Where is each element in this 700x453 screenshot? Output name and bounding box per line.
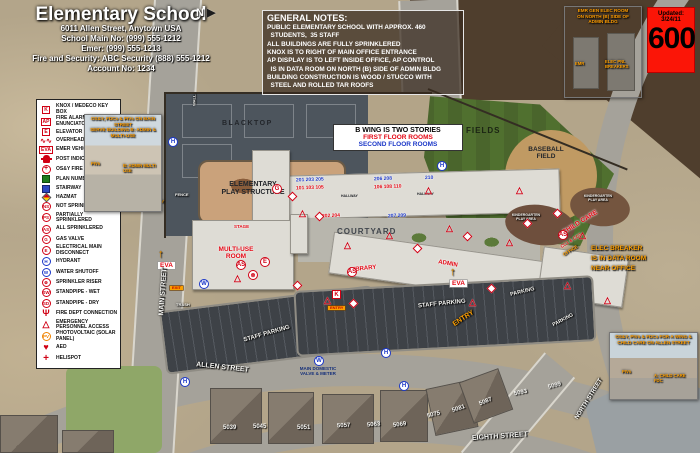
emergency-access-icon: △	[344, 240, 351, 251]
legend-label: HELISPOT	[56, 356, 81, 361]
water-shutoff-icon: W	[39, 268, 53, 277]
general-note-line-6: IS IN DATA ROOM ON NORTH (B) SIDE OF ADM…	[267, 66, 459, 74]
hydrant-icon: H	[168, 137, 178, 147]
emergency-access-icon: △	[516, 185, 523, 196]
water-shutoff-icon: W	[199, 279, 209, 289]
general-notes-box: GENERAL NOTES: PUBLIC ELEMENTARY SCHOOL …	[262, 10, 464, 95]
not-sprinklered-symbol: NS	[42, 202, 51, 211]
helispot-symbol: +	[43, 354, 49, 364]
hazmat-icon	[413, 244, 423, 254]
hazmat-icon	[288, 192, 298, 202]
site-address-line-2: School Main No: (999) 555-1212	[10, 34, 232, 44]
general-note-line-5: AP DISPLAY IS TO LEFT INSIDE OFFICE, AP …	[267, 57, 459, 65]
emergency-access-icon: △	[579, 230, 586, 241]
hazmat-icon	[315, 212, 325, 222]
water-shutoff-symbol: W	[42, 268, 51, 277]
emer-vehicle-access-icon: EVA	[39, 146, 53, 154]
emergency-access-icon: △	[604, 295, 611, 306]
emergency-access-icon: △	[324, 295, 331, 306]
hydrant-icon: H	[399, 381, 409, 391]
sprinkler-riser-icon: ⊗	[39, 278, 53, 287]
legend-label: STAIRWAY	[56, 186, 81, 191]
electrical-disconnect-icon: E	[260, 257, 270, 267]
house-number: 5087	[478, 397, 493, 408]
emergency-personnel-access-icon: △	[39, 320, 53, 329]
eva-arrow-icon: ↑	[450, 266, 456, 278]
legend-label: STANDPIPE - WET	[56, 290, 100, 295]
elevator-symbol: E	[42, 128, 50, 136]
photo-chip: ELEC PNL BREAKERS	[605, 59, 629, 69]
site-address-line-1: 6011 Allen Street, Anytown USA	[10, 24, 232, 34]
general-note-line-8: STEEL AND ROLLED TAR ROOFS	[267, 82, 459, 90]
plan-number-icon	[39, 175, 53, 183]
legend-label: HAZMAT	[56, 195, 77, 200]
all-sprinklered-icon: AS	[558, 230, 568, 240]
legend-label: PARTIALLY SPRINKLERED	[56, 213, 118, 224]
emergency-access-icon: △	[299, 208, 306, 219]
hydrant-icon: H	[39, 257, 53, 266]
all-sprinklered-icon: AS	[236, 260, 246, 270]
house-number: 5039	[223, 425, 236, 431]
legend-label: ALL SPRINKLERED	[56, 226, 103, 231]
b-wing-note-line3: SECOND FLOOR ROOMS	[335, 141, 461, 148]
b-wing-note-line1: B WING IS TWO STORIES	[335, 127, 461, 134]
legend-item-hydrant: HHYDRANT	[39, 257, 118, 266]
legend-label: SPRINKLER RISER	[56, 280, 102, 285]
fire-alarm-annunciator-symbol: AP	[41, 118, 52, 126]
gas-valve-icon: G	[39, 235, 53, 244]
emer-vehicle-access-symbol: EVA	[39, 146, 53, 154]
plan-number: 600	[648, 23, 694, 55]
standpipe-dry-symbol: SD	[42, 299, 51, 308]
hazmat-symbol	[41, 192, 51, 202]
legend-label: EMERGENCY PERSONNEL ACCESS	[56, 320, 118, 331]
legend-label: WATER SHUTOFF	[56, 270, 99, 275]
legend-label: ELECTRICAL MAIN DISCONNECT	[56, 245, 118, 256]
legend-item-partially-sprinklered: PSPARTIALLY SPRINKLERED	[39, 213, 118, 224]
all-sprinklered-icon: AS	[39, 225, 53, 234]
legend-item-sprinkler-riser: ⊗SPRINKLER RISER	[39, 278, 118, 287]
north-arrow: N ▶	[196, 6, 215, 19]
legend-item-helispot: +HELISPOT	[39, 354, 118, 364]
house-number: 5081	[451, 404, 466, 414]
legend-item-water-shutoff: WWATER SHUTOFF	[39, 268, 118, 277]
photo-chip: EMR	[575, 61, 584, 66]
emergency-personnel-access-symbol: △	[43, 320, 50, 329]
partially-sprinklered-icon: PS	[39, 213, 53, 222]
plan-number-box: Updated: 3/24/11 600	[647, 7, 695, 73]
fire-alarm-annunciator-icon: AP	[39, 118, 53, 126]
emergency-access-icon: △	[234, 273, 241, 284]
legend-item-all-sprinklered: ASALL SPRINKLERED	[39, 225, 118, 234]
hydrant-icon: H	[180, 377, 190, 387]
house-number: 5063	[367, 421, 381, 428]
legend-item-standpipe-dry: SDSTANDPIPE - DRY	[39, 299, 118, 308]
site-address-line-5: Account No: 1234	[10, 64, 232, 74]
water-shutoff-icon: W	[314, 356, 324, 366]
photo-chip: B: ADMIN MULTI USE	[123, 163, 156, 173]
photo-chip: PIVs	[622, 369, 631, 374]
hydrant-icon: H	[381, 348, 391, 358]
legend-label: FIRE DEPT CONNECTION	[56, 311, 117, 316]
general-note-line-7: BUILDING CONSTRUCTION IS WOOD / STUCCO W…	[267, 74, 459, 82]
legend-label: ELEVATOR	[56, 130, 82, 135]
general-notes-title: GENERAL NOTES:	[267, 14, 459, 24]
eva-arrow-icon: ↑	[158, 248, 164, 260]
photo-caption: OS&Y, PIVs & FDCs FOR A WING & CHILD CAR…	[610, 334, 697, 345]
b-wing-note-line2: FIRST FLOOR ROOMS	[335, 134, 461, 141]
hazmat-icon	[293, 281, 303, 291]
pre-incident-plan-map: BLACKTOPFIELDSBASEBALL FIELDELEMENTARY P…	[0, 0, 700, 453]
legend-item-emergency-personnel-access: △EMERGENCY PERSONNEL ACCESS	[39, 320, 118, 331]
photo-chip: A: CHILD CARE FDC	[654, 373, 685, 383]
house-number: 5075	[426, 410, 440, 419]
hazmat-icon	[523, 219, 533, 229]
knox-key-box-symbol: K	[42, 106, 50, 114]
knox-key-box-icon: K	[39, 106, 53, 114]
photo-caption: EMR GEN ELEC ROOM ON NORTH (B) SIDE OF A…	[565, 8, 641, 25]
knox-box-icon: K	[332, 290, 341, 299]
site-address-line-4: Fire and Security: ABC Security (888) 55…	[10, 54, 232, 64]
photo-caption: OS&Y, FDCs & PIVs ON MAIN STREET SERVE B…	[85, 116, 161, 139]
emergency-access-icon: △	[469, 297, 476, 308]
site-address-line-3: Emer: (999) 555-1213	[10, 44, 232, 54]
general-note-line-2: STUDENTS, 35 STAFF	[267, 32, 459, 40]
legend-label: HYDRANT	[56, 259, 80, 264]
electrical-main-disconnect-symbol: E	[42, 246, 51, 255]
hazmat-icon	[553, 209, 563, 219]
photovoltaic-solar-panel-symbol: PV	[42, 332, 51, 341]
post-indicator-valve-symbol	[43, 155, 50, 163]
aed-symbol: ♥	[43, 343, 48, 352]
emergency-access-icon: △	[386, 230, 393, 241]
photo-chip: PIVs	[91, 161, 100, 166]
post-indicator-valve-icon	[39, 155, 53, 163]
hydrant-symbol: H	[42, 257, 51, 266]
fire-dept-connection-symbol: Ψ	[42, 309, 49, 318]
house-number: 5045	[253, 424, 266, 430]
overhead-door-symbol: ∿∿	[40, 138, 52, 145]
house-number: 5057	[337, 423, 351, 430]
legend-label: GAS VALVE	[56, 237, 84, 242]
sprinkler-riser-symbol: ⊗	[42, 278, 51, 287]
legend-item-aed: ♥AED	[39, 343, 118, 352]
legend-label: STANDPIPE - DRY	[56, 301, 99, 306]
north-arrow-icon: ▶	[207, 7, 215, 19]
electrical-main-disconnect-icon: E	[39, 246, 53, 255]
emergency-access-icon: △	[564, 280, 571, 291]
house-number: 5093	[514, 389, 528, 398]
helispot-icon: +	[39, 354, 53, 364]
general-note-line-4: KNOX IS TO RIGHT OF MAIN OFFICE ENTRANCE	[267, 49, 459, 57]
allen-street-valves-photo: OS&Y, PIVs & FDCs FOR A WING & CHILD CAR…	[609, 332, 698, 400]
emergency-access-icon: △	[506, 237, 513, 248]
legend-label: AED	[56, 345, 67, 350]
legend-item-electrical-main-disconnect: EELECTRICAL MAIN DISCONNECT	[39, 245, 118, 256]
all-sprinklered-icon: AS	[347, 267, 357, 277]
hazmat-icon	[349, 299, 359, 309]
aed-icon: ♥	[39, 343, 53, 352]
hazmat-icon	[39, 194, 53, 201]
site-address-block: 6011 Allen Street, Anytown USASchool Mai…	[10, 24, 232, 74]
emergency-access-icon: △	[446, 223, 453, 234]
house-number: 5099	[547, 381, 561, 390]
b-wing-note-box: B WING IS TWO STORIES FIRST FLOOR ROOMS …	[333, 124, 463, 151]
plan-number-symbol	[42, 175, 50, 183]
hazmat-icon	[463, 232, 473, 242]
partially-sprinklered-symbol: PS	[42, 213, 51, 222]
all-sprinklered-symbol: AS	[42, 225, 51, 234]
hydrant-icon: H	[437, 161, 447, 171]
emergency-access-icon: △	[425, 185, 432, 196]
legend-item-photovoltaic-solar-panel: PVPHOTOVOLTAIC (SOLAR PANEL)	[39, 331, 118, 342]
gas-valve-symbol: G	[42, 235, 51, 244]
general-note-line-3: ALL BUILDINGS ARE FULLY SPRINKLERED	[267, 41, 459, 49]
general-note-line-1: PUBLIC ELEMENTARY SCHOOL WITH APPROX. 46…	[267, 24, 459, 32]
standpipe-wet-symbol: SW	[42, 288, 51, 297]
not-sprinklered-icon: NS	[39, 202, 53, 211]
main-street-valves-photo: OS&Y, FDCs & PIVs ON MAIN STREET SERVE B…	[84, 114, 162, 212]
osy-fire-valve-symbol: +	[42, 165, 51, 174]
legend-item-fire-dept-connection: ΨFIRE DEPT CONNECTION	[39, 309, 118, 318]
photovoltaic-solar-panel-icon: PV	[39, 332, 53, 341]
legend-item-gas-valve: GGAS VALVE	[39, 235, 118, 244]
standpipe-wet-icon: SW	[39, 288, 53, 297]
gas-valve-icon: G	[272, 184, 282, 194]
standpipe-dry-icon: SD	[39, 299, 53, 308]
elevator-icon: E	[39, 128, 53, 136]
overhead-door-icon: ∿∿	[39, 138, 53, 145]
electrical-room-photo: EMR GEN ELEC ROOM ON NORTH (B) SIDE OF A…	[564, 6, 642, 98]
sprinkler-riser-icon: ⊗	[248, 270, 258, 280]
legend-item-standpipe-wet: SWSTANDPIPE - WET	[39, 288, 118, 297]
north-label: N	[196, 7, 204, 19]
osy-fire-valve-icon: +	[39, 165, 53, 174]
hazmat-icon	[487, 284, 497, 294]
fire-dept-connection-icon: Ψ	[39, 309, 53, 318]
legend-label: PHOTOVOLTAIC (SOLAR PANEL)	[56, 331, 118, 342]
general-notes-lines: PUBLIC ELEMENTARY SCHOOL WITH APPROX. 46…	[267, 24, 459, 91]
house-number: 5051	[297, 425, 310, 431]
house-number: 5069	[393, 421, 407, 429]
